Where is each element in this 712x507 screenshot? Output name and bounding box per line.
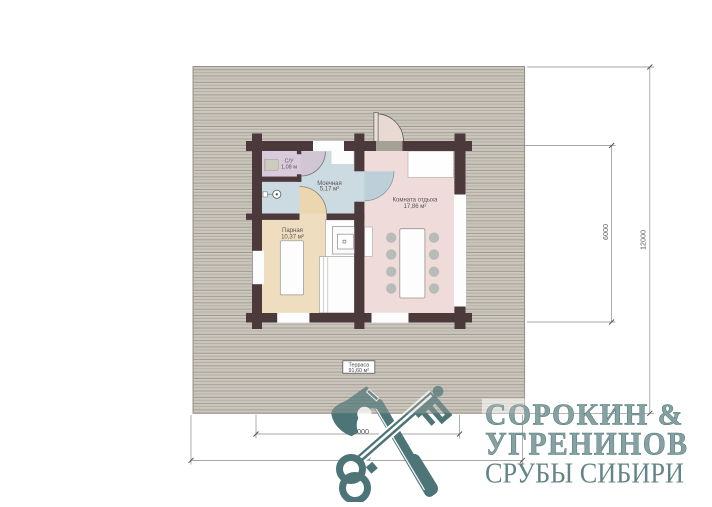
svg-text:6000: 6000 bbox=[601, 224, 610, 240]
svg-text:91,60 м²: 91,60 м² bbox=[349, 368, 370, 374]
svg-text:Комната отдыха: Комната отдыха bbox=[393, 198, 439, 204]
svg-text:УГРЕНИНОВ: УГРЕНИНОВ bbox=[485, 427, 689, 463]
svg-text:5,17 м²: 5,17 м² bbox=[320, 187, 339, 193]
svg-text:Парная: Парная bbox=[282, 228, 303, 234]
svg-text:17,86 м²: 17,86 м² bbox=[404, 204, 427, 210]
svg-text:10,37 м²: 10,37 м² bbox=[281, 235, 304, 241]
svg-text:1,08 м: 1,08 м bbox=[281, 165, 297, 171]
svg-text:12000: 12000 bbox=[639, 230, 648, 250]
svg-text:СРУБЫ СИБИРИ: СРУБЫ СИБИРИ bbox=[485, 458, 684, 489]
